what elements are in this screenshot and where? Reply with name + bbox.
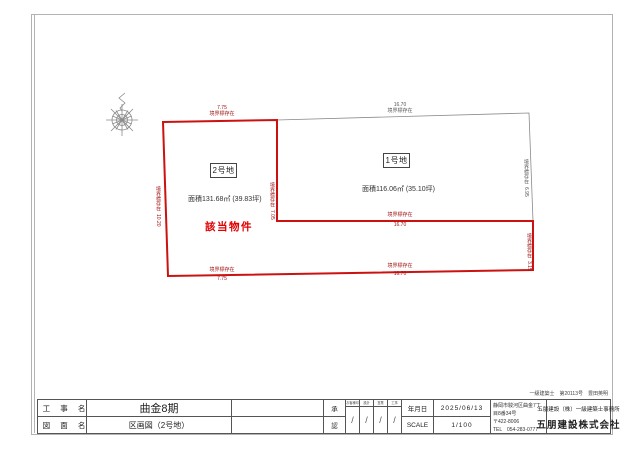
lot2-name: 2号地 <box>213 165 235 176</box>
lot2-area: 面積131.68㎡ (39.83坪) <box>188 194 262 204</box>
scale-label: SCALE <box>402 417 433 433</box>
dim-bottom-right-note: 境界標存在 <box>378 264 422 270</box>
dim-divider: 境界標存在7.05 <box>269 182 274 220</box>
dim-right-strip: 境界標存在3.15 <box>526 233 531 271</box>
lot1-name: 1号地 <box>386 155 408 166</box>
lot2-name-box: 2号地 <box>210 163 237 178</box>
title-block: 工 事 名 曲金8期 図 面 名 区画図（2号地） 承 認 お客様印 / 設計 … <box>37 399 611 434</box>
sign-col-design-header: 設計 <box>361 400 373 405</box>
dim-bottom-left-value: 7.75 <box>200 277 244 283</box>
dim-divider-note: 境界標存在 <box>269 182 275 207</box>
lot1-name-box: 1号地 <box>383 153 410 168</box>
dim-left-edge-value: 10.20 <box>155 214 161 227</box>
dim-strip-top-value: 16.70 <box>378 223 422 229</box>
approval-label-bottom: 認 <box>324 417 345 433</box>
drawing-sheet: 2号地 面積131.68㎡ (39.83坪) 該当物件 1号地 面積116.06… <box>0 0 640 449</box>
dim-top-lot1-note: 境界標存在 <box>378 109 422 115</box>
dim-left-edge-note: 境界標存在 <box>155 186 161 211</box>
drawing-name-value: 区画図（2号地） <box>87 417 231 433</box>
dim-right-strip-value: 3.15 <box>526 261 532 271</box>
scale-value: 1/100 <box>434 417 490 433</box>
company-name: 五朋建設株式会社 <box>547 416 610 432</box>
dim-top-lot2-note: 境界標存在 <box>200 112 244 118</box>
architect-office-line: 五朋建設（株）一級建築士事務所 <box>547 403 610 415</box>
drawing-name-label: 図 面 名 <box>38 417 90 433</box>
dim-right-lot1: 境界標存在6.95 <box>523 159 528 197</box>
dim-bottom-right-value: 16.70 <box>378 272 422 278</box>
site-plan-svg <box>0 0 640 449</box>
date-label: 年月日 <box>402 400 433 416</box>
dim-right-lot1-note: 境界標存在 <box>523 159 529 184</box>
dim-right-strip-note: 境界標存在 <box>526 233 532 258</box>
date-value: 2025/06/13 <box>434 400 490 416</box>
sign-col-customer-mark: / <box>346 407 359 433</box>
dim-strip-top-note: 境界標存在 <box>378 213 422 219</box>
dim-bottom-left-note: 境界標存在 <box>200 268 244 274</box>
architect-license-line: 一級建築士 第20113号 豊田英明 <box>495 390 608 397</box>
project-name-value: 曲金8期 <box>87 400 231 416</box>
dim-right-lot1-value: 6.95 <box>523 187 529 197</box>
dim-left-edge: 境界標存在10.20 <box>155 186 160 227</box>
sign-col-design-mark: / <box>360 407 373 433</box>
lot1-area: 面積116.06㎡ (35.10坪) <box>362 184 435 194</box>
sign-col-sales-header: 営業 <box>375 400 387 405</box>
dim-divider-value: 7.05 <box>269 210 275 220</box>
lot2-subject-tag: 該当物件 <box>205 219 253 234</box>
sign-col-sales-mark: / <box>374 407 387 433</box>
sign-col-customer-header: お客様印 <box>347 400 359 405</box>
project-name-label: 工 事 名 <box>38 400 90 416</box>
sign-col-works-header: 工事 <box>389 400 401 405</box>
north-compass-icon <box>106 93 138 136</box>
approval-label-top: 承 <box>324 400 345 416</box>
sign-col-works-mark: / <box>388 407 401 433</box>
